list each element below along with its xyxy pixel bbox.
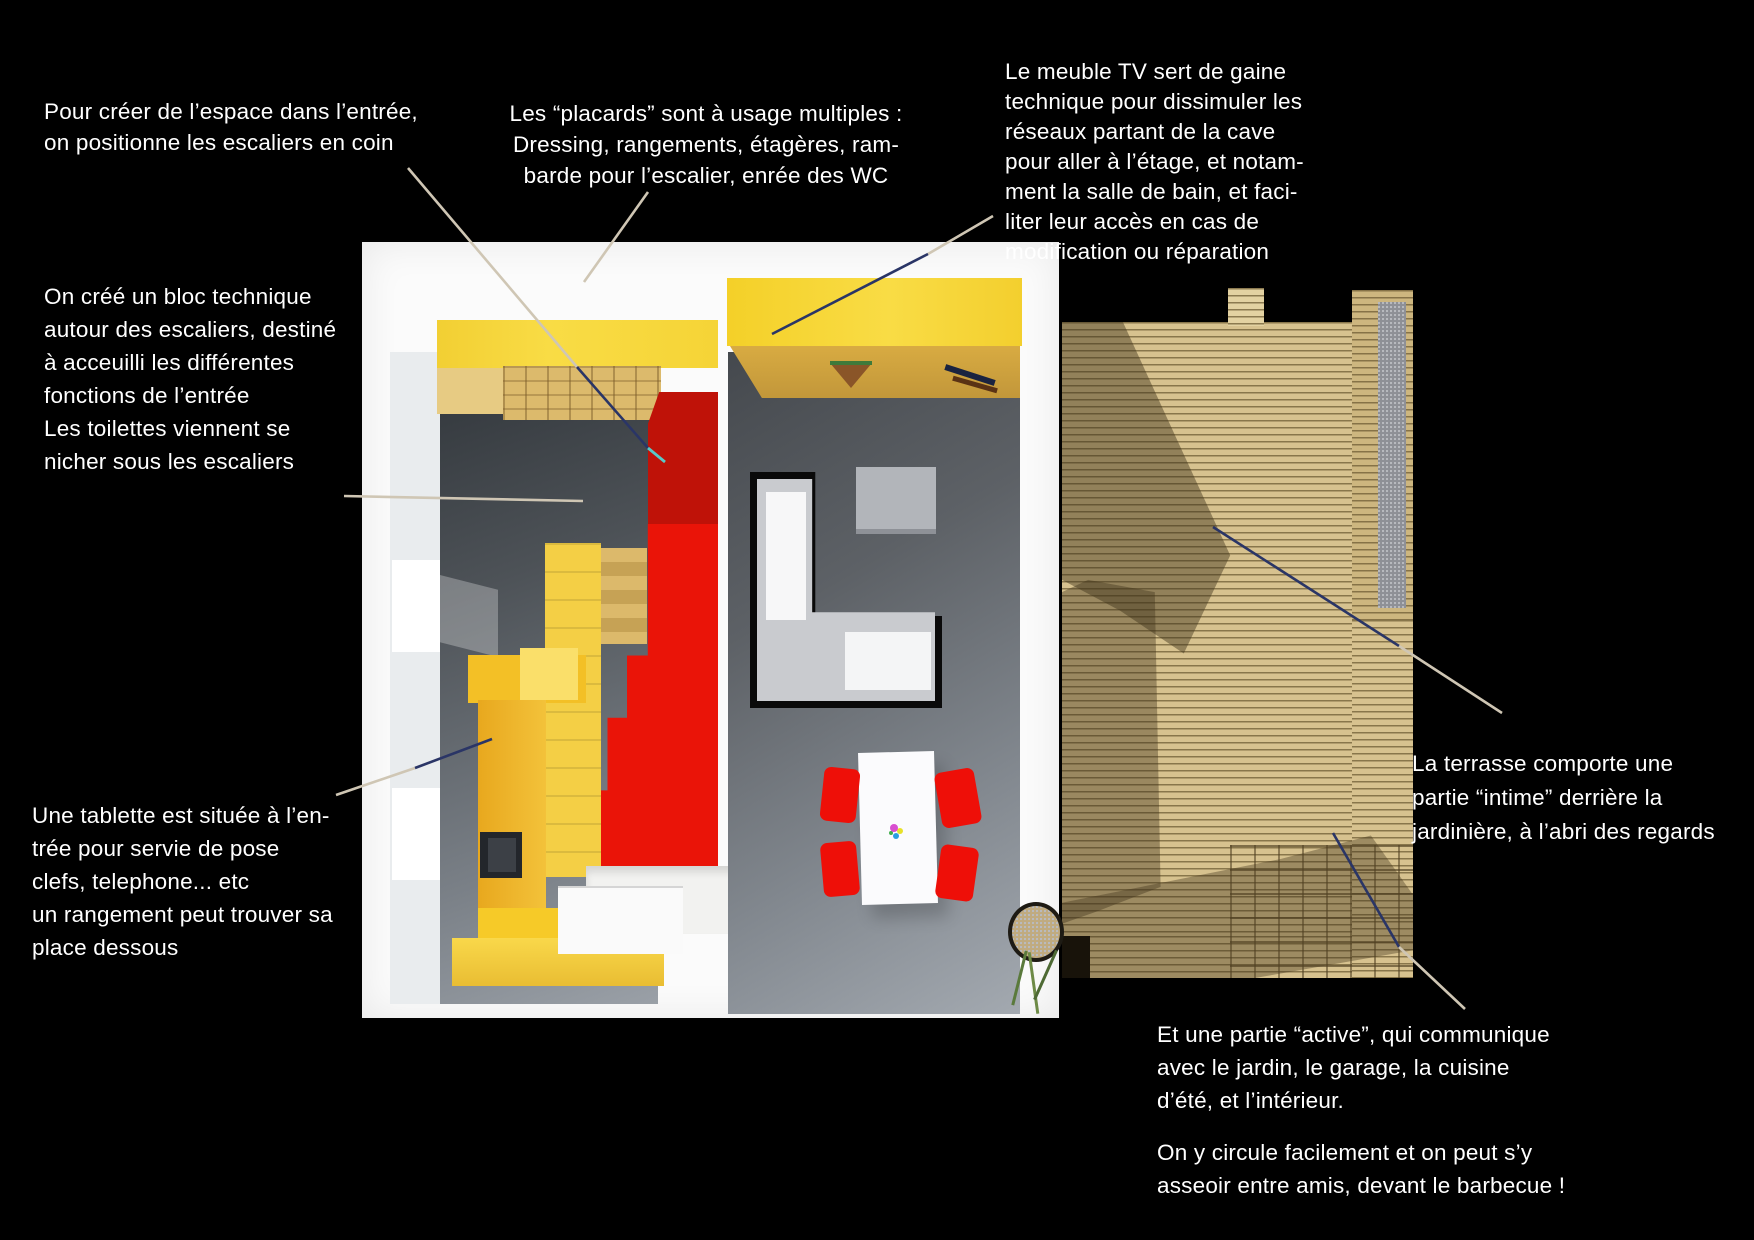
entry-closet-top (437, 320, 718, 368)
living-sideboard-front (730, 346, 1020, 398)
entry-closet-shelves (503, 366, 661, 420)
annotation-circulation: On y circule facilement et on peut s’y a… (1157, 1136, 1565, 1202)
terrace-corner-steps (1230, 845, 1413, 978)
desk-top-step (520, 648, 578, 700)
sideboard-decor-triangle (830, 363, 872, 388)
entry-left-wall (390, 352, 440, 1004)
sideboard-decor-triangle-edge (830, 361, 872, 365)
desk-tablet-screen (488, 838, 516, 872)
leader-line-intime-beige (1399, 646, 1502, 713)
annotation-stairs-corner: Pour créer de l’espace dans l’entrée, on… (44, 96, 418, 158)
kitchen-highlight-vertical (766, 492, 806, 620)
dining-table (858, 751, 938, 905)
terrace-top-plank-sliver (1228, 288, 1264, 326)
stair-mid-steps (601, 548, 647, 644)
appliance-box (558, 886, 683, 954)
table-flowers (890, 824, 898, 832)
dining-chair-1 (819, 766, 860, 823)
planter-gravel (1378, 302, 1406, 608)
annotation-terrasse-intime: La terrasse comporte une partie “intime”… (1412, 747, 1715, 849)
entry-closet-front (437, 368, 503, 414)
annotation-bloc-technique: On créé un bloc technique autour des esc… (44, 280, 336, 412)
dining-chair-2 (820, 841, 861, 898)
kitchen-highlight-horizontal (845, 632, 931, 690)
stair-side-yellow (545, 543, 601, 877)
annotation-tablette: Une tablette est située à l’en- trée pou… (32, 799, 333, 964)
diagram-canvas: Pour créer de l’espace dans l’entrée, on… (0, 0, 1754, 1240)
stair-landing-dark (648, 392, 718, 524)
living-sideboard-top (727, 278, 1022, 346)
desk-vertical-bar (478, 700, 546, 940)
media-cabinet (856, 467, 936, 534)
annotation-meuble-tv: Le meuble TV sert de gaine technique pou… (1005, 57, 1304, 267)
annotation-placards: Les “placards” sont à usage multiples : … (505, 98, 907, 191)
annotation-partie-active: Et une partie “active”, qui communique a… (1157, 1018, 1550, 1117)
dining-chair-4 (934, 844, 979, 903)
window-upper (392, 560, 440, 652)
window-lower (392, 788, 440, 880)
annotation-toilettes: Les toilettes viennent se nicher sous le… (44, 412, 294, 478)
